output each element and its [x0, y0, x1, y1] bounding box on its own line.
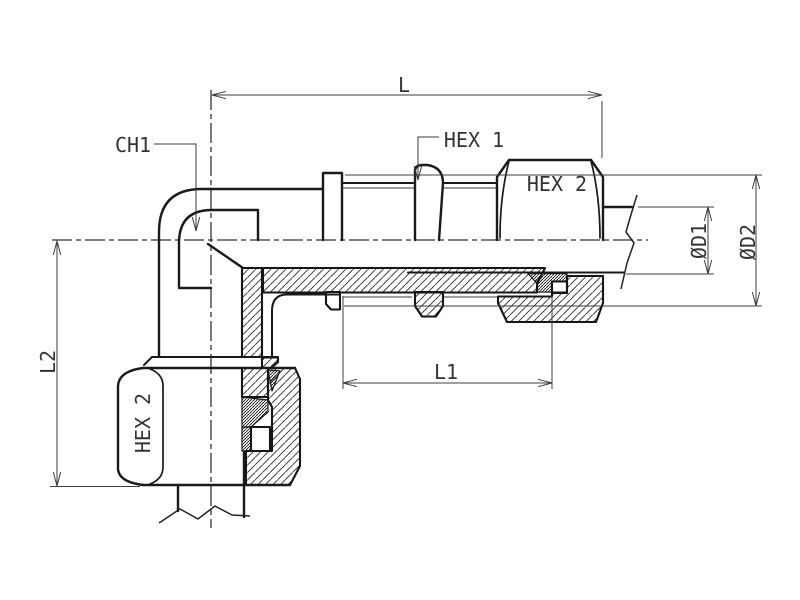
- ferrule-v-hatch-sliver: [242, 427, 251, 451]
- label-hex1: HEX 1: [444, 128, 504, 152]
- label-ch1: CH1: [115, 133, 151, 157]
- label-d2: ØD2: [736, 224, 760, 260]
- tube-v-break: [159, 506, 250, 523]
- section-hatching: [242, 268, 603, 485]
- vertical-arm-wall-section: [242, 268, 262, 357]
- hex1-lower-section: [415, 292, 443, 317]
- bore-corner-chamfer: [208, 244, 243, 268]
- label-hex2-horizontal: HEX 2: [527, 172, 587, 196]
- label-d1: ØD1: [687, 223, 711, 259]
- leader-hex1: [418, 137, 439, 179]
- vertical-wall-in-nut-section: [242, 368, 268, 397]
- body-outlines: [118, 160, 632, 517]
- label-l: L: [398, 73, 410, 97]
- break-symbols: [159, 195, 637, 523]
- cutting-ring-seat-v: [242, 397, 268, 427]
- label-l2: L2: [36, 350, 60, 374]
- ferrule-v: [251, 427, 270, 451]
- tube-h-break: [621, 195, 637, 289]
- technical-drawing-canvas: L CH1 HEX 1 HEX 2 L1 L2 HEX 2 ØD1 ØD2: [0, 0, 800, 600]
- label-l1: L1: [434, 360, 458, 384]
- collar-front-face: [323, 173, 342, 240]
- labels: L CH1 HEX 1 HEX 2 L1 L2 HEX 2 ØD1 ØD2: [36, 73, 760, 453]
- elbow-fitting-drawing: L CH1 HEX 1 HEX 2 L1 L2 HEX 2 ØD1 ØD2: [0, 0, 800, 600]
- ferrule-h: [552, 282, 567, 294]
- label-hex2-vertical: HEX 2: [131, 393, 155, 453]
